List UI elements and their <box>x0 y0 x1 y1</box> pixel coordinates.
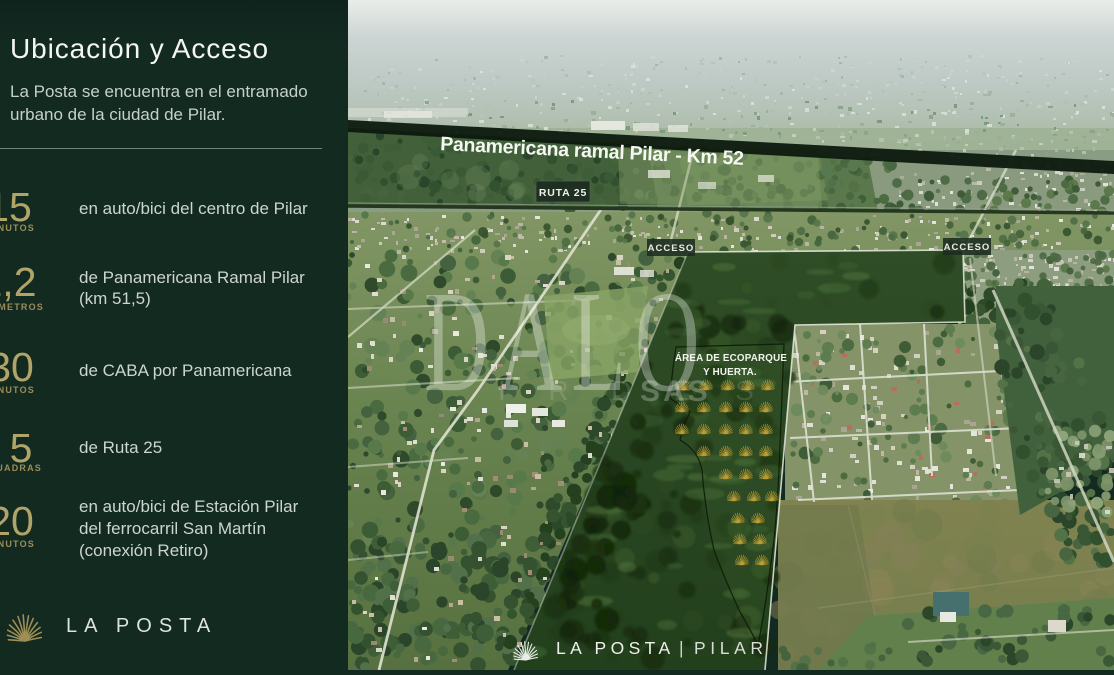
svg-text:|: | <box>679 638 684 658</box>
svg-text:SAS: SAS <box>640 375 711 408</box>
svg-text:PILAR: PILAR <box>694 638 768 658</box>
svg-text:I R D E S: I R D E S <box>498 375 763 406</box>
svg-text:ACCESO: ACCESO <box>648 243 695 254</box>
svg-text:ACCESO: ACCESO <box>944 242 991 253</box>
svg-text:RUTA 25: RUTA 25 <box>539 187 587 199</box>
svg-text:LA POSTA: LA POSTA <box>556 638 675 658</box>
